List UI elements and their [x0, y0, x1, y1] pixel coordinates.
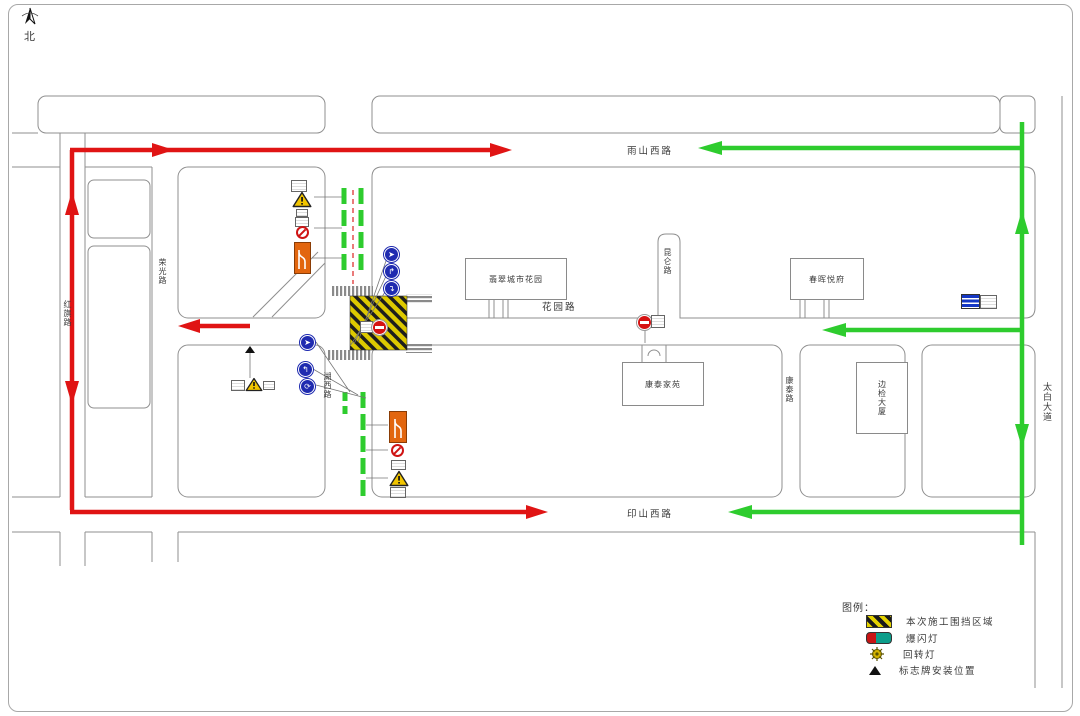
mandatory-direction-sign-icon: ↱	[384, 264, 399, 279]
no-entry-sign-icon	[637, 315, 652, 330]
no-turn-prohibition-sign-icon	[296, 226, 309, 239]
road-label-taibai: 太白大道	[1040, 382, 1053, 422]
sign-board	[263, 381, 275, 390]
road-label-hongqi: 红旗路	[62, 300, 73, 327]
sign-board	[391, 460, 406, 470]
sign-post-marker-icon	[245, 346, 255, 353]
building-chunhui-yuefu: 春晖悦府	[790, 258, 864, 300]
mandatory-direction-sign-icon: ↰	[298, 362, 313, 377]
legend-item-label: 标志牌安装位置	[899, 663, 976, 677]
construction-warning-sign-icon	[292, 191, 312, 208]
legend-item-construction-zone: 本次施工围挡区域	[866, 614, 994, 628]
mandatory-direction-sign-icon: ➤	[384, 247, 399, 262]
sign-board	[231, 380, 245, 391]
building-feicui-city-garden: 翡翠城市花园	[465, 258, 567, 300]
construction-warning-sign-icon	[389, 470, 409, 487]
legend-item-label: 回转灯	[903, 647, 936, 661]
construction-warning-sign-icon	[245, 377, 263, 392]
road-label-kunlun: 昆仑路	[662, 248, 673, 275]
construction-zone-swatch-icon	[866, 615, 892, 628]
legend-item-label: 爆闪灯	[906, 631, 939, 645]
road-label-yinshan-west: 印山西路	[600, 506, 700, 520]
mandatory-direction-sign-icon: ⟳	[300, 379, 315, 394]
building-kangtai-jiayuan: 康泰家苑	[622, 362, 704, 406]
lane-merge-detour-sign-icon	[389, 411, 407, 443]
no-turn-prohibition-sign-icon	[391, 444, 404, 457]
mandatory-direction-sign-icon: ↴	[384, 281, 399, 296]
map-linework	[0, 0, 1080, 716]
building-label: 翡翠城市花园	[489, 274, 543, 285]
road-label-rongguang: 荣光路	[157, 258, 168, 285]
legend-item-strobe-light: 爆闪灯	[866, 631, 939, 645]
sign-board	[390, 487, 406, 498]
direction-guide-sign-icon	[961, 294, 980, 309]
sign-board	[651, 315, 665, 328]
building-bianjian-tower: 边检大厦	[856, 362, 908, 434]
rotating-light-icon	[868, 646, 886, 662]
sign-board	[296, 209, 308, 217]
compass-needle-icon	[22, 8, 38, 24]
legend-item-sign-position: 标志牌安装位置	[869, 663, 976, 677]
road-label-huxi: 湖西路	[322, 372, 333, 399]
no-entry-sign-icon	[372, 320, 387, 335]
building-label: 春晖悦府	[809, 274, 845, 285]
legend-item-rotating-light: 回转灯	[868, 646, 936, 662]
road-label-yushan-west: 雨山西路	[600, 143, 700, 157]
compass-north-label: 北	[24, 28, 35, 44]
mandatory-direction-sign-icon: ➤	[300, 335, 315, 350]
building-label: 康泰家苑	[645, 379, 681, 390]
legend-title: 图例：	[842, 599, 875, 614]
strobe-light-swatch-icon	[866, 632, 892, 644]
road-label-huayuan: 花园路	[542, 299, 577, 313]
traffic-diversion-map: 北 雨山西路 印山西路 花园路 红旗路 荣光路 湖西路 昆仑路 康泰路 太白大道…	[0, 0, 1080, 716]
sign-board	[980, 295, 997, 309]
road-label-kangtai: 康泰路	[784, 376, 795, 403]
building-label: 边检大厦	[877, 380, 888, 416]
open-route-green-arrows	[698, 122, 1029, 545]
sign-post-marker-icon	[869, 666, 881, 675]
legend-item-label: 本次施工围挡区域	[906, 614, 994, 628]
lane-merge-detour-sign-icon	[294, 242, 311, 274]
